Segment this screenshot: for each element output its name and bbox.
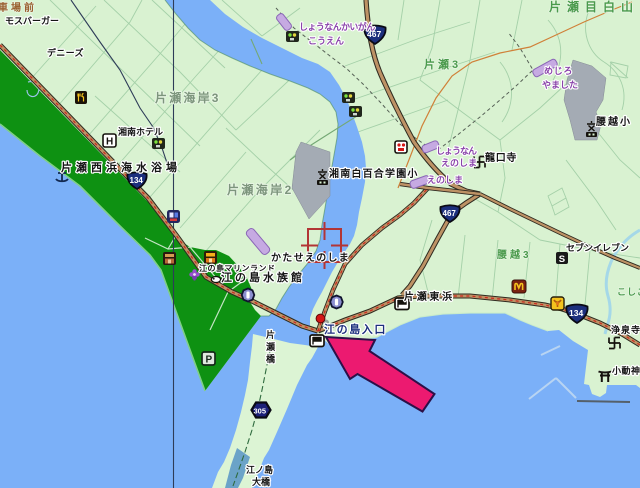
- svg-text:片瀬3: 片瀬3: [424, 57, 461, 71]
- svg-text:134: 134: [569, 308, 583, 318]
- svg-text:江の島入口: 江の島入口: [324, 322, 387, 336]
- svg-text:車場前: 車場前: [0, 1, 37, 14]
- svg-text:134: 134: [130, 176, 144, 185]
- svg-text:腰越3: 腰越3: [496, 248, 532, 261]
- svg-text:H: H: [106, 137, 113, 148]
- svg-text:龍口寺: 龍口寺: [485, 151, 517, 164]
- svg-text:えのしま: えのしま: [441, 158, 477, 168]
- svg-text:小動神社: 小動神社: [611, 365, 640, 376]
- svg-text:467: 467: [443, 209, 457, 218]
- svg-text:しょうなん: しょうなん: [436, 146, 477, 156]
- svg-text:こしごえ: こしごえ: [617, 286, 640, 297]
- svg-text:江の島水族館: 江の島水族館: [221, 270, 305, 284]
- svg-text:片瀬橋: 片瀬橋: [266, 329, 276, 364]
- svg-text:めじろ: めじろ: [544, 66, 573, 76]
- svg-text:やました: やました: [542, 80, 578, 90]
- svg-text:片瀬海岸3: 片瀬海岸3: [155, 90, 221, 105]
- svg-text:セブンイレブン: セブンイレブン: [566, 242, 629, 253]
- svg-text:片瀬海岸2: 片瀬海岸2: [227, 182, 294, 197]
- svg-text:デニーズ: デニーズ: [47, 47, 84, 58]
- svg-text:片瀬東浜: 片瀬東浜: [404, 290, 455, 303]
- svg-text:モスバーガー: モスバーガー: [5, 15, 59, 26]
- svg-text:片瀬目白山: 片瀬目白山: [549, 0, 639, 14]
- svg-text:S: S: [559, 254, 565, 265]
- svg-text:腰越小: 腰越小: [595, 115, 632, 128]
- svg-text:えのしま: えのしま: [427, 175, 463, 185]
- svg-text:湘南白百合学園小: 湘南白百合学園小: [329, 167, 419, 180]
- svg-text:しょうなんかいがん: しょうなんかいがん: [299, 21, 375, 32]
- svg-text:かたせえのしま: かたせえのしま: [271, 252, 350, 264]
- svg-text:305: 305: [254, 407, 267, 416]
- svg-text:片瀬西浜海水浴場: 片瀬西浜海水浴場: [61, 160, 181, 174]
- svg-text:こうえん: こうえん: [308, 36, 344, 46]
- svg-text:P: P: [206, 355, 213, 366]
- svg-text:湘南ホテル: 湘南ホテル: [118, 126, 163, 137]
- svg-text:浄泉寺: 浄泉寺: [611, 324, 640, 335]
